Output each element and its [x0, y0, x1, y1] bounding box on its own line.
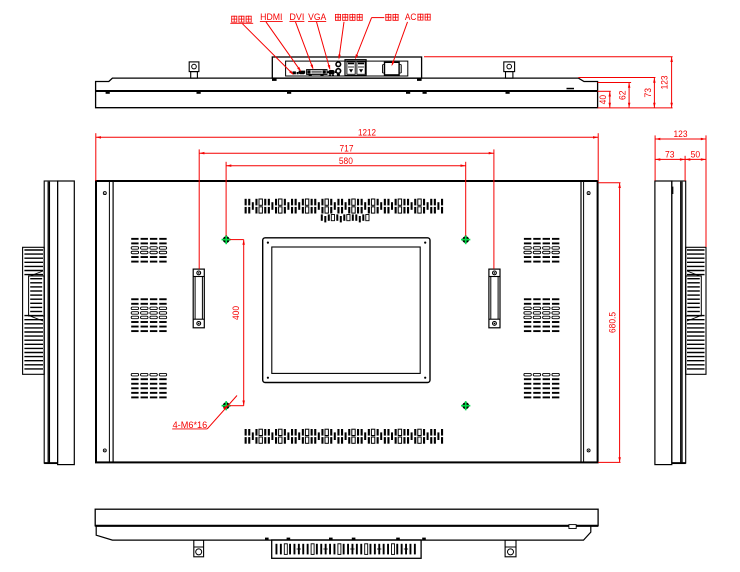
- svg-text:HDMI: HDMI: [260, 12, 282, 22]
- svg-text:AC: AC: [405, 12, 417, 22]
- svg-text:VGA: VGA: [308, 12, 327, 22]
- svg-text:50: 50: [691, 150, 701, 160]
- svg-text:DVI: DVI: [289, 12, 304, 22]
- svg-text:680.5: 680.5: [607, 312, 617, 333]
- svg-text:1212: 1212: [358, 127, 376, 137]
- svg-text:73: 73: [643, 88, 653, 98]
- svg-text:73: 73: [665, 150, 675, 160]
- svg-text:400: 400: [231, 306, 241, 320]
- svg-text:62: 62: [617, 90, 627, 100]
- svg-text:123: 123: [674, 129, 688, 139]
- svg-text:717: 717: [340, 143, 354, 153]
- svg-text:40: 40: [598, 95, 608, 105]
- svg-text:4-M6*16: 4-M6*16: [173, 420, 208, 430]
- svg-text:580: 580: [339, 156, 353, 166]
- svg-text:123: 123: [660, 75, 670, 89]
